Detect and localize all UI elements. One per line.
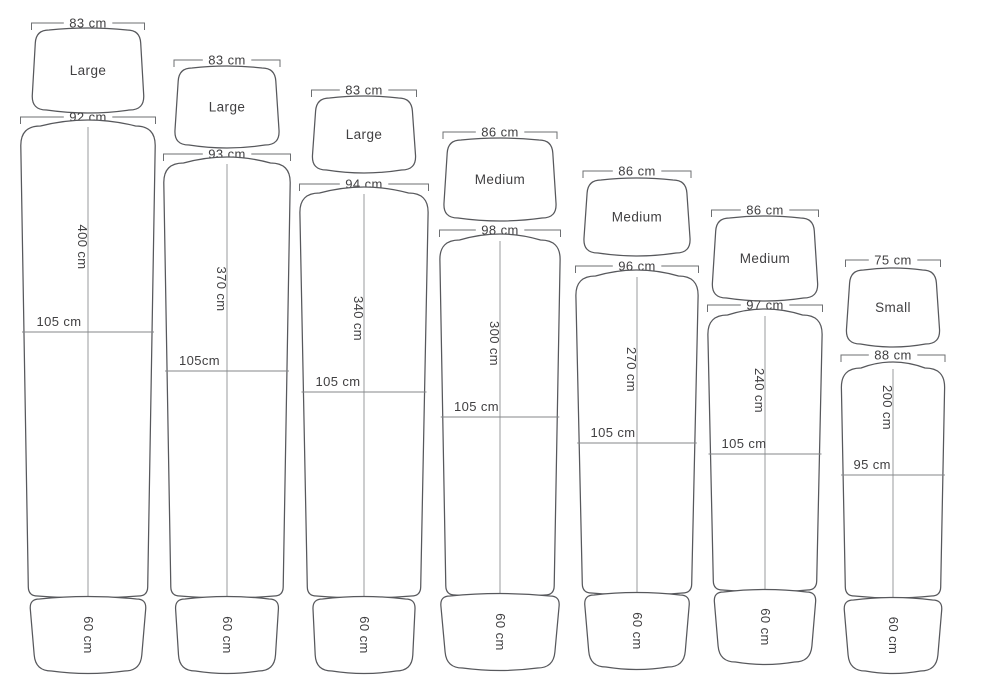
length-label: 270 cm xyxy=(624,347,639,392)
tail-width-label: 60 cm xyxy=(493,613,508,650)
nose-width-label: 83 cm xyxy=(208,53,245,68)
nose-width-label: 86 cm xyxy=(481,125,518,140)
length-label: 340 cm xyxy=(351,296,366,341)
deck-width-label: 88 cm xyxy=(874,348,911,363)
size-label: Large xyxy=(209,100,246,115)
mid-width-label: 105cm xyxy=(179,353,220,368)
size-label: Medium xyxy=(740,251,790,266)
tail-width-label: 60 cm xyxy=(220,616,235,653)
nose-width-label: 86 cm xyxy=(618,164,655,179)
board-column: 83 cmLarge93 cm370 cm105cm60 cm xyxy=(164,53,291,674)
size-label: Large xyxy=(346,127,383,142)
size-label: Medium xyxy=(475,172,525,187)
tail-width-label: 60 cm xyxy=(357,616,372,653)
mid-width-label: 105 cm xyxy=(722,436,767,451)
board-column: 75 cmSmall88 cm200 cm95 cm60 cm xyxy=(841,253,945,674)
length-label: 370 cm xyxy=(214,266,229,311)
mid-width-label: 105 cm xyxy=(37,314,82,329)
tail-width-label: 60 cm xyxy=(758,608,773,645)
mid-width-label: 105 cm xyxy=(591,425,636,440)
board-column: 86 cmMedium98 cm300 cm105 cm60 cm xyxy=(440,125,561,671)
tail-width-label: 60 cm xyxy=(886,617,901,654)
size-label: Large xyxy=(70,63,107,78)
board-size-diagram: 83 cmLarge92 cm400 cm105 cm60 cm83 cmLar… xyxy=(0,0,1000,700)
length-label: 400 cm xyxy=(75,224,90,269)
size-label: Small xyxy=(875,300,911,315)
nose-width-label: 86 cm xyxy=(746,203,783,218)
nose-width-label: 83 cm xyxy=(345,83,382,98)
size-diagram-page: 83 cmLarge92 cm400 cm105 cm60 cm83 cmLar… xyxy=(0,0,1000,700)
board-column: 86 cmMedium97 cm240 cm105 cm60 cm xyxy=(708,203,823,665)
length-label: 200 cm xyxy=(880,385,895,430)
length-label: 300 cm xyxy=(487,321,502,366)
mid-width-label: 105 cm xyxy=(316,374,361,389)
tail-width-label: 60 cm xyxy=(81,616,96,653)
nose-width-label: 75 cm xyxy=(874,253,911,268)
board-column: 83 cmLarge92 cm400 cm105 cm60 cm xyxy=(21,16,156,674)
mid-width-label: 105 cm xyxy=(454,399,499,414)
tail-width-label: 60 cm xyxy=(630,612,645,649)
mid-width-label: 95 cm xyxy=(854,457,891,472)
length-label: 240 cm xyxy=(752,368,767,413)
board-column: 83 cmLarge94 cm340 cm105 cm60 cm xyxy=(300,83,429,674)
board-column: 86 cmMedium96 cm270 cm105 cm60 cm xyxy=(576,164,699,670)
size-label: Medium xyxy=(612,210,662,225)
